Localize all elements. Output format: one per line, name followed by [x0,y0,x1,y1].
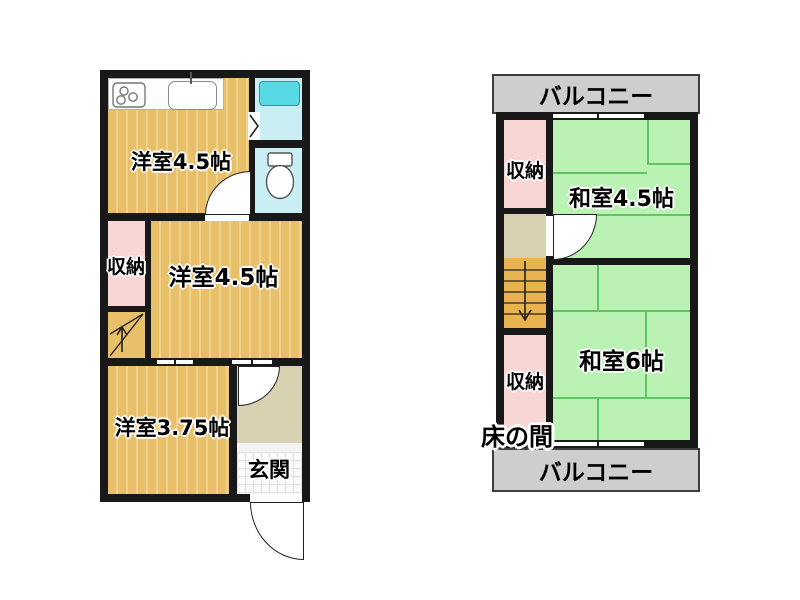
sliding-door-gap [157,358,193,366]
entrance-step [237,443,302,452]
folding-door-icon [248,112,260,140]
window-gap [553,440,644,448]
stairs-up-arrow [108,312,145,358]
faucet-icon [190,72,192,84]
balcony-label: バルコニー [539,453,654,487]
room-label: 洋室4.5帖 [145,258,302,292]
room-label: 洋室4.5帖 [111,146,251,176]
stairs-2f [504,258,546,328]
closet-label: 収納 [102,252,150,279]
tatami-joint [553,172,647,174]
entrance-opening [250,494,302,502]
balcony-label: バルコニー [539,77,654,111]
front-door-swing-arc [250,502,304,560]
doorway-gap [546,216,553,256]
toilet-icon [263,152,297,200]
room-label: 洋室3.75帖 [102,412,242,442]
bathtub-icon [259,81,300,106]
tatami-joint [647,163,690,165]
stove-icon [112,82,146,108]
tatami-joint [553,397,690,399]
tatami-joint [647,120,649,163]
balcony-top: バルコニー [492,74,700,114]
tokonoma-label: 床の間 [481,417,553,452]
tatami-joint [597,265,599,310]
stairs-down-arrow [504,258,546,328]
room-label: 和室4.5帖 [556,181,687,213]
balcony-bottom: バルコニー [492,448,700,492]
room-label: 和室6帖 [556,342,687,376]
window-gap [553,112,644,120]
tatami-joint [597,397,599,440]
hallway-2f [504,214,546,258]
sink-icon [168,81,217,110]
sliding-door-gap [232,358,272,366]
tatami-joint [596,214,690,216]
closet-label: 収納 [500,367,550,394]
tatami-joint [553,310,690,312]
closet-label: 収納 [500,156,550,183]
stairs-1f [108,312,145,358]
entrance-label: 玄関 [238,454,300,484]
floor-plan-canvas: 洋室4.5帖 収納 洋室4.5帖 洋室3.75帖 玄関 バルコニー [0,0,800,600]
